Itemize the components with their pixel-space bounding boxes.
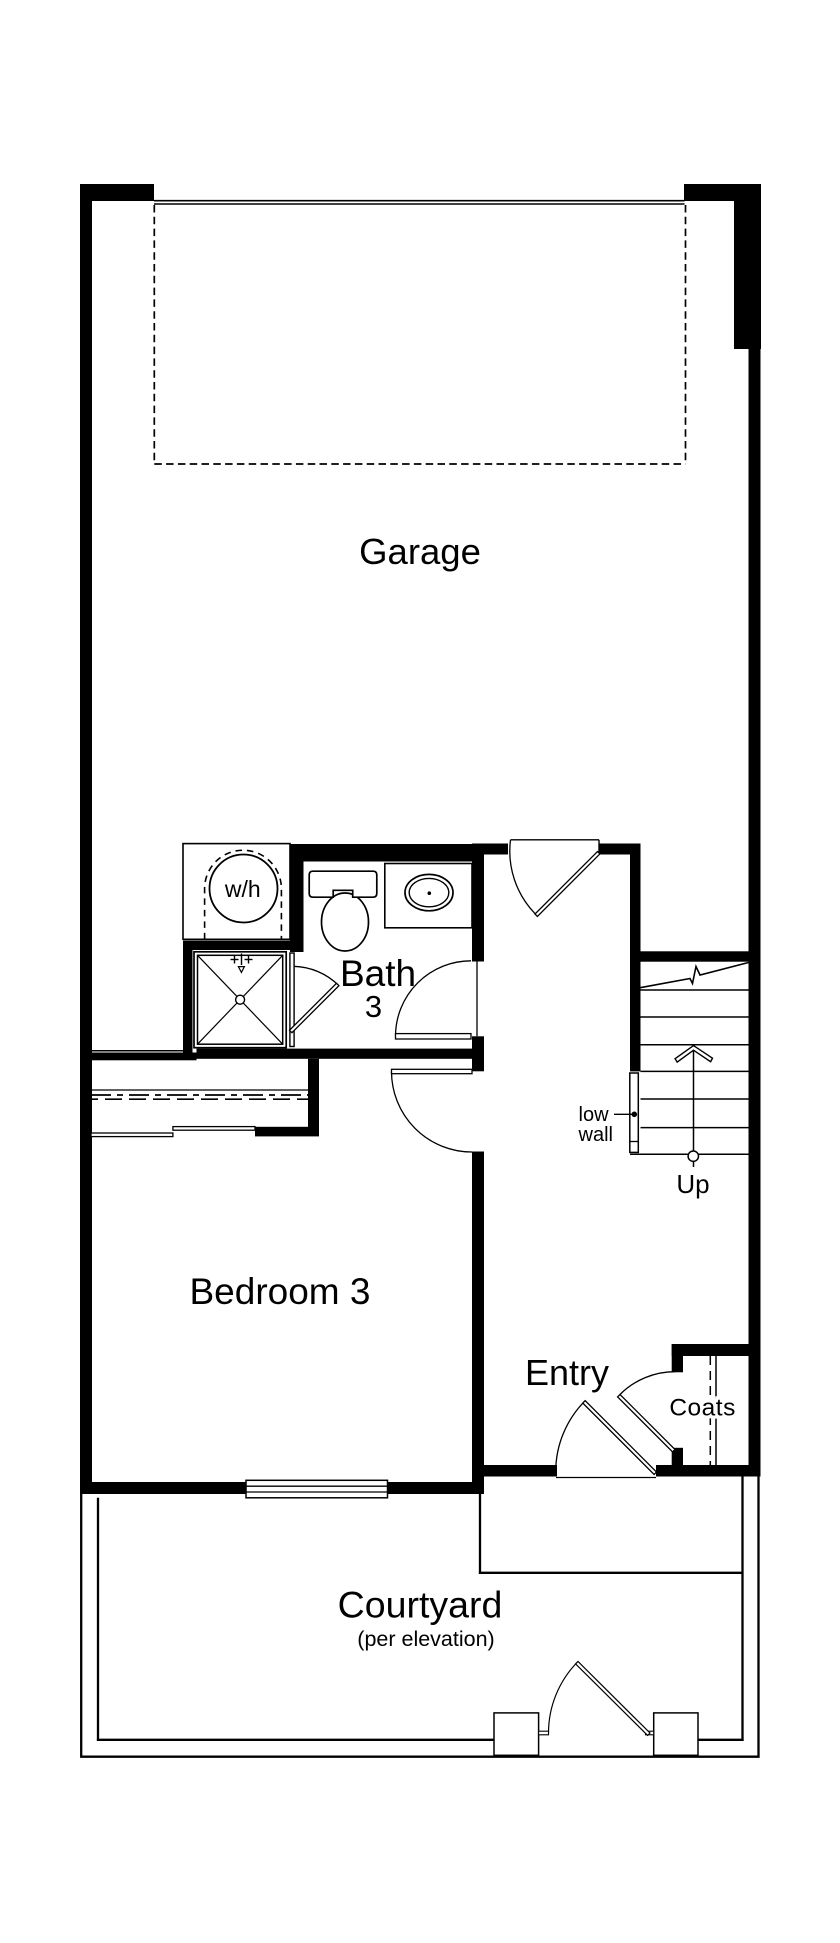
svg-text:Garage: Garage (359, 531, 481, 572)
svg-text:Bedroom 3: Bedroom 3 (190, 1271, 371, 1312)
svg-text:3: 3 (365, 989, 382, 1024)
svg-text:(per elevation): (per elevation) (357, 1627, 494, 1651)
svg-text:Up: Up (676, 1169, 709, 1199)
svg-text:Entry: Entry (525, 1352, 609, 1393)
svg-text:low: low (579, 1104, 610, 1126)
svg-text:wall: wall (578, 1124, 613, 1146)
svg-text:Courtyard: Courtyard (338, 1584, 503, 1626)
svg-text:Bath: Bath (340, 953, 416, 994)
svg-text:Coats: Coats (669, 1395, 736, 1422)
svg-text:w/h: w/h (224, 876, 261, 902)
